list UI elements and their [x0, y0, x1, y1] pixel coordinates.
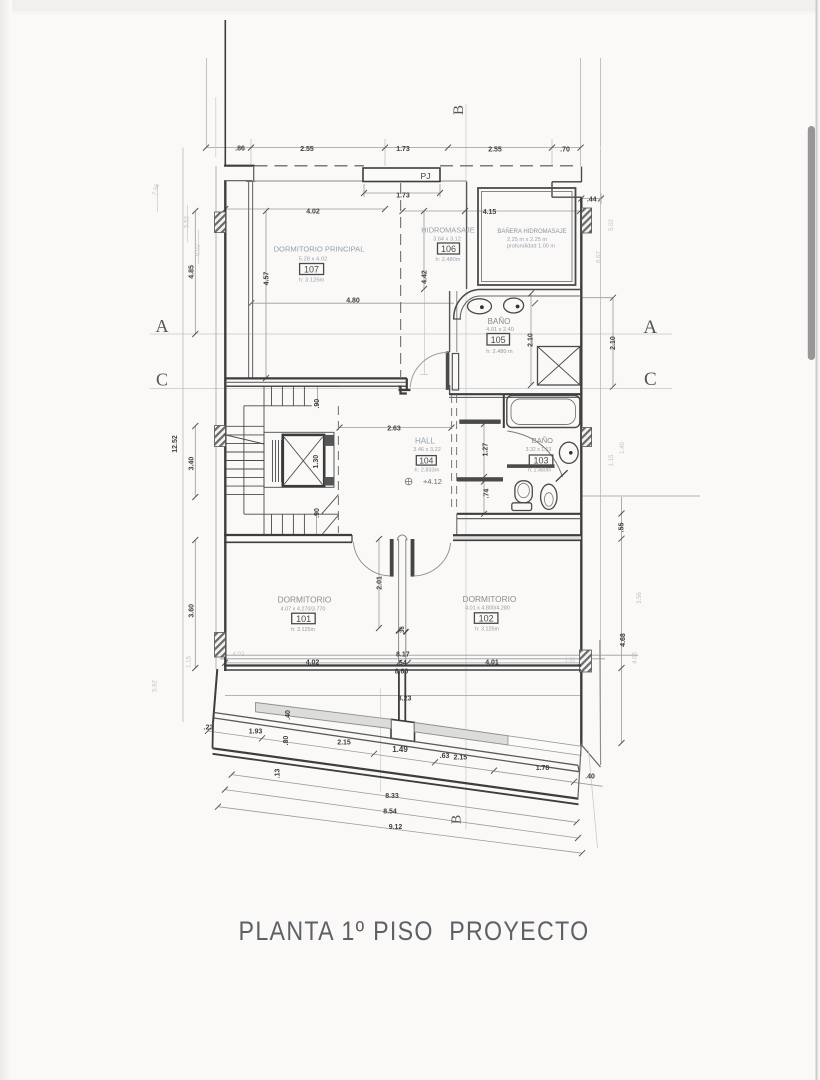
svg-text:A: A — [643, 317, 657, 338]
svg-text:8.54: 8.54 — [383, 809, 397, 816]
svg-text:4.06: 4.06 — [632, 652, 638, 664]
svg-text:A: A — [156, 316, 169, 336]
svg-text:h: 2.833m: h: 2.833m — [415, 468, 440, 474]
svg-text:.36: .36 — [400, 626, 406, 635]
svg-text:1.49: 1.49 — [392, 745, 408, 754]
svg-text:4.68: 4.68 — [620, 633, 627, 647]
svg-text:.90: .90 — [314, 508, 321, 518]
svg-text:4.80: 4.80 — [346, 298, 360, 305]
svg-text:2.63: 2.63 — [387, 426, 401, 433]
svg-text:5.02: 5.02 — [609, 219, 615, 231]
svg-text:6.67: 6.67 — [596, 251, 602, 263]
svg-text:BAÑO: BAÑO — [488, 317, 511, 326]
svg-text:4.07 x 4.270/3.770: 4.07 x 4.270/3.770 — [281, 607, 326, 613]
svg-text:C: C — [644, 369, 657, 390]
svg-text:4.57: 4.57 — [263, 272, 270, 286]
svg-text:4.15: 4.15 — [483, 209, 497, 216]
svg-text:4.02: 4.02 — [233, 652, 245, 658]
svg-text:PJ: PJ — [421, 171, 431, 181]
svg-text:4.01: 4.01 — [485, 660, 499, 667]
svg-text:4.02: 4.02 — [306, 209, 320, 216]
svg-text:104: 104 — [419, 456, 433, 466]
svg-text:4.01 x 4.800/4.280: 4.01 x 4.800/4.280 — [465, 606, 510, 612]
svg-text:profundidad 1.00 m: profundidad 1.00 m — [507, 244, 556, 250]
svg-text:107: 107 — [304, 265, 319, 275]
svg-text:4.02: 4.02 — [306, 660, 320, 667]
svg-text:2.15: 2.15 — [337, 740, 351, 747]
svg-text:1.73: 1.73 — [396, 193, 410, 200]
svg-text:1.27: 1.27 — [482, 443, 489, 457]
svg-text:1.73: 1.73 — [396, 146, 410, 153]
svg-text:BAÑO: BAÑO — [532, 436, 553, 445]
svg-text:.44: .44 — [587, 197, 597, 204]
svg-text:h: 2.480m: h: 2.480m — [528, 468, 551, 474]
svg-text:2.55: 2.55 — [488, 147, 502, 154]
svg-text:4.42: 4.42 — [422, 270, 429, 284]
svg-text:.40: .40 — [585, 774, 595, 781]
svg-text:8.17: 8.17 — [396, 652, 410, 659]
svg-text:C: C — [156, 370, 168, 390]
svg-text:DORMITORIO: DORMITORIO — [463, 594, 517, 604]
svg-text:101: 101 — [296, 614, 311, 624]
svg-text:.80: .80 — [283, 736, 290, 746]
svg-text:HALL: HALL — [415, 437, 436, 446]
svg-text:8.23: 8.23 — [398, 696, 412, 703]
svg-text:h: 3.125m: h: 3.125m — [291, 627, 315, 633]
svg-text:DORMITORIO: DORMITORIO — [278, 595, 332, 605]
svg-text:8.60: 8.60 — [395, 669, 409, 676]
svg-text:3.40: 3.40 — [188, 457, 195, 471]
svg-text:h: 3.125m: h: 3.125m — [299, 278, 325, 284]
svg-text:.63: .63 — [440, 753, 450, 760]
svg-text:+4.12: +4.12 — [423, 477, 442, 486]
svg-text:B: B — [451, 105, 467, 115]
svg-text:h: 3.125m: h: 3.125m — [475, 627, 499, 633]
svg-text:.40: .40 — [285, 710, 292, 720]
svg-text:.54: .54 — [397, 660, 407, 667]
svg-text:DORMITORIO PRINCIPAL: DORMITORIO PRINCIPAL — [274, 245, 365, 254]
svg-text:1.50: 1.50 — [565, 658, 576, 664]
svg-text:B: B — [450, 815, 465, 824]
svg-text:.70: .70 — [560, 147, 570, 154]
svg-text:HIDROMASAJE: HIDROMASAJE — [421, 226, 474, 235]
svg-text:1.15: 1.15 — [187, 656, 193, 668]
svg-text:4.01 x 2.40: 4.01 x 2.40 — [486, 327, 514, 333]
svg-text:2.55: 2.55 — [300, 146, 314, 153]
svg-text:5.92: 5.92 — [153, 680, 159, 692]
svg-text:.23: .23 — [204, 725, 214, 732]
svg-text:1.40: 1.40 — [620, 442, 626, 454]
svg-text:1.78: 1.78 — [536, 765, 550, 772]
svg-text:1.93: 1.93 — [249, 729, 263, 736]
svg-text:1.15: 1.15 — [609, 454, 615, 466]
svg-text:3.46 x 3.22: 3.46 x 3.22 — [413, 447, 441, 453]
svg-text:8.33: 8.33 — [385, 793, 399, 800]
svg-text:6.02: 6.02 — [196, 244, 202, 256]
svg-text:2.01: 2.01 — [376, 576, 383, 590]
svg-text:4.85: 4.85 — [188, 265, 195, 279]
svg-text:2.10: 2.10 — [610, 336, 617, 350]
svg-text:BAÑERA HIDROMASAJE: BAÑERA HIDROMASAJE — [497, 228, 566, 235]
svg-text:3.60: 3.60 — [188, 604, 195, 618]
svg-text:12.52: 12.52 — [172, 435, 179, 453]
svg-text:.13: .13 — [274, 769, 281, 779]
svg-text:2.25 m x 2.25 m: 2.25 m x 2.25 m — [507, 237, 547, 243]
svg-text:2.15: 2.15 — [453, 755, 467, 762]
svg-text:1.30: 1.30 — [313, 455, 320, 469]
svg-text:5.53: 5.53 — [185, 216, 191, 228]
svg-text:3.56: 3.56 — [637, 592, 643, 604]
svg-text:.86: .86 — [235, 146, 245, 153]
svg-text:.90: .90 — [314, 399, 321, 409]
svg-text:106: 106 — [441, 244, 456, 254]
svg-text:h: 2.480 m: h: 2.480 m — [486, 349, 513, 355]
svg-text:2.10: 2.10 — [527, 333, 534, 347]
svg-text:h: 2.480m: h: 2.480m — [436, 257, 461, 263]
svg-text:103: 103 — [533, 456, 548, 466]
svg-text:102: 102 — [479, 614, 494, 624]
svg-text:.55: .55 — [618, 523, 625, 533]
svg-text:9.12: 9.12 — [389, 824, 403, 831]
svg-text:3.64 x 3.12: 3.64 x 3.12 — [433, 237, 461, 243]
svg-text:5.28 x 4.02: 5.28 x 4.02 — [299, 257, 328, 263]
svg-text:.74: .74 — [483, 489, 490, 499]
svg-text:105: 105 — [491, 335, 506, 345]
svg-text:3.32 x 1.63: 3.32 x 1.63 — [526, 447, 552, 453]
